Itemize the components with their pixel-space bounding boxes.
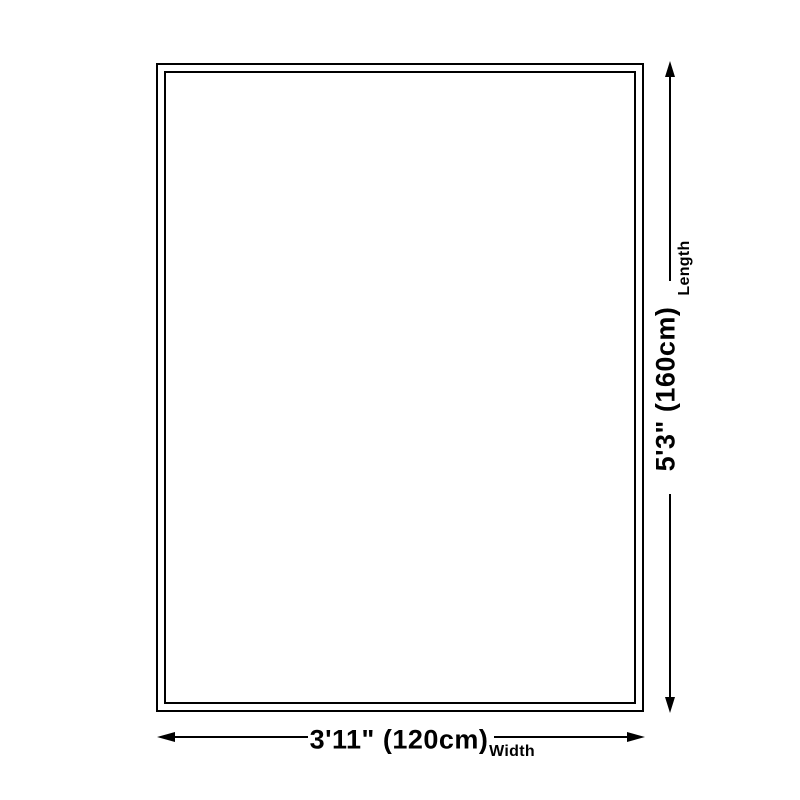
item-outline-outer [156,63,644,712]
item-outline-inner [164,71,636,704]
length-value-label: 5'3" (160cm) [653,307,680,472]
width-dimension-line-left [162,736,308,738]
length-dimension-line-upper [669,70,671,281]
width-value-label: 3'11" (120cm) [310,727,489,754]
arrow-right-icon [627,732,645,742]
width-axis-label: Width [489,744,535,760]
arrow-down-icon [665,697,675,713]
dimension-diagram: Length 5'3" (160cm) 3'11" (120cm) Width [0,0,800,800]
length-axis-label: Length [677,240,693,295]
width-dimension-line-right [494,736,635,738]
length-dimension-line-lower [669,494,671,706]
